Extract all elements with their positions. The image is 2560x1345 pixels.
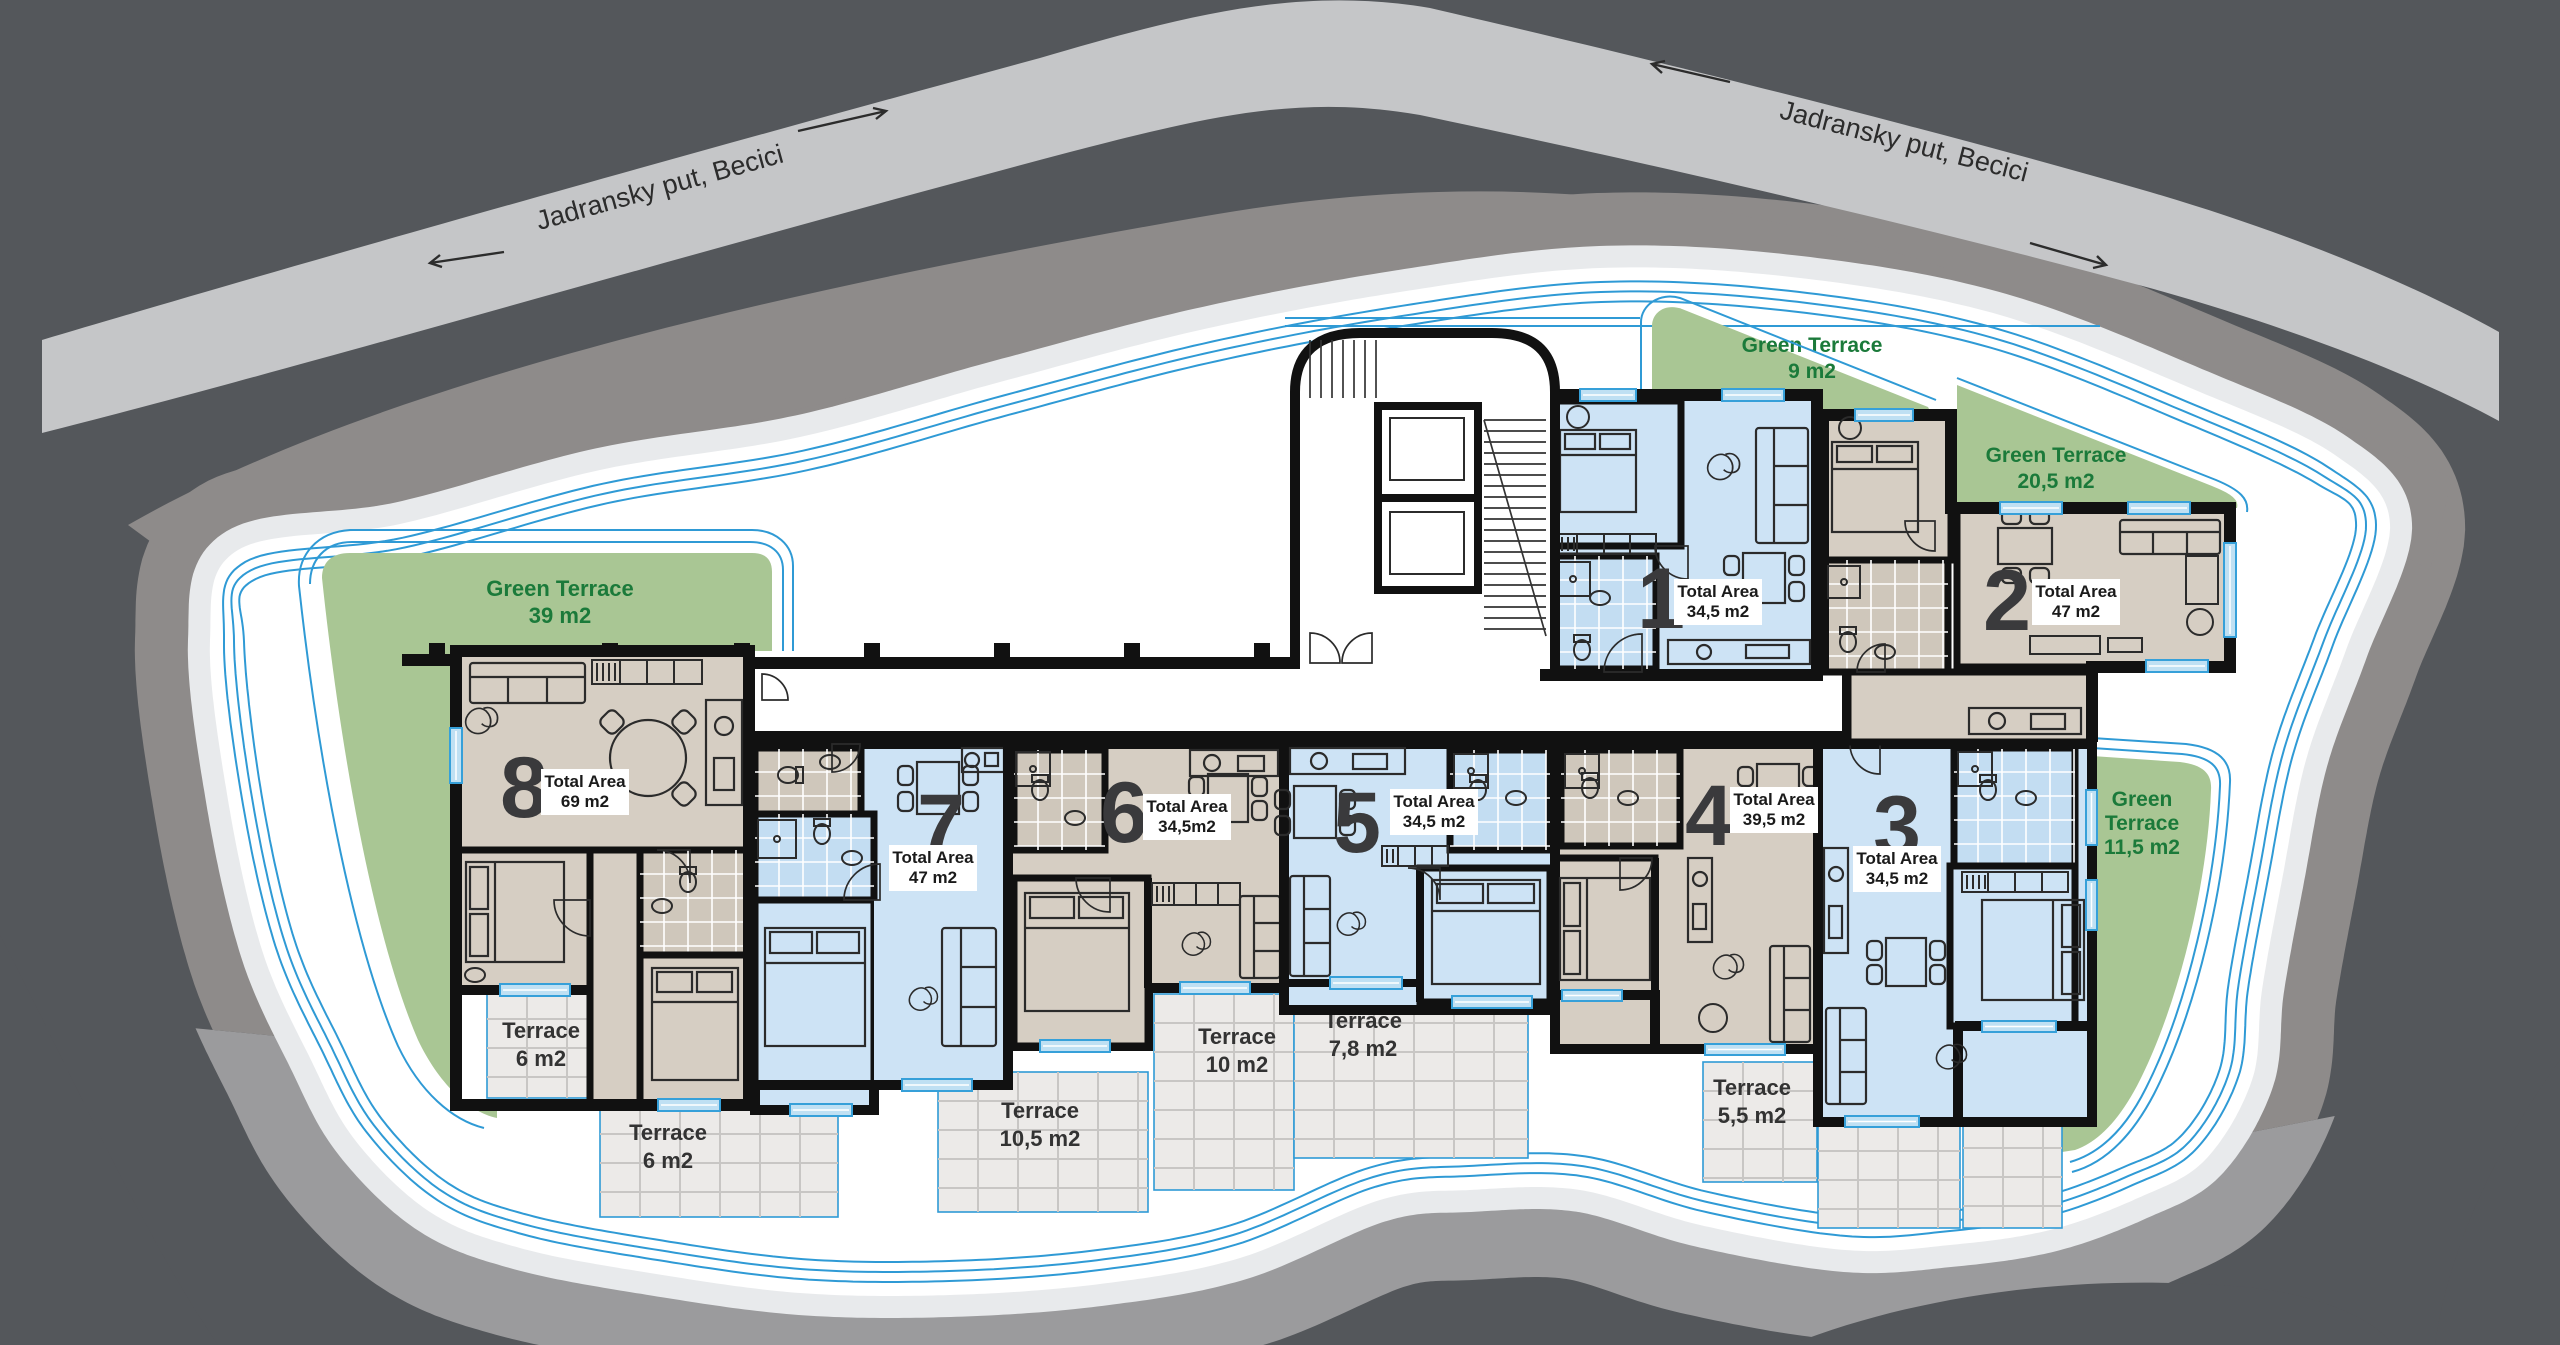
svg-text:Total Area: Total Area [1146,797,1228,816]
svg-text:6 m2: 6 m2 [516,1046,566,1071]
svg-text:6: 6 [1100,765,1148,861]
svg-text:34,5 m2: 34,5 m2 [1866,869,1928,888]
svg-text:Terrace: Terrace [1713,1075,1791,1100]
svg-text:Green Terrace: Green Terrace [1986,444,2127,467]
svg-text:Total Area: Total Area [544,772,626,791]
svg-text:Green Terrace: Green Terrace [1742,334,1883,357]
svg-text:47 m2: 47 m2 [909,868,957,887]
svg-text:Terrace: Terrace [629,1120,707,1145]
svg-text:11,5 m2: 11,5 m2 [2104,836,2180,859]
svg-text:4: 4 [1685,768,1733,864]
svg-text:2: 2 [1983,553,2031,649]
svg-text:Terrace: Terrace [502,1018,580,1043]
svg-text:5,5 m2: 5,5 m2 [1718,1103,1787,1128]
svg-text:39 m2: 39 m2 [529,603,591,628]
svg-text:Green: Green [2112,788,2173,811]
svg-text:34,5 m2: 34,5 m2 [1687,602,1749,621]
svg-text:Terrace: Terrace [1198,1024,1276,1049]
svg-text:Total Area: Total Area [1393,792,1475,811]
svg-text:Total Area: Total Area [1733,790,1815,809]
svg-text:7,8 m2: 7,8 m2 [1329,1036,1398,1061]
svg-text:Terrace: Terrace [1001,1098,1079,1123]
svg-text:Total Area: Total Area [1856,849,1938,868]
svg-text:69 m2: 69 m2 [561,792,609,811]
svg-text:9 m2: 9 m2 [1788,360,1836,383]
svg-text:34,5m2: 34,5m2 [1158,817,1216,836]
svg-text:Green Terrace: Green Terrace [486,576,634,601]
svg-text:10,5 m2: 10,5 m2 [1000,1126,1081,1151]
svg-text:Total Area: Total Area [892,848,974,867]
svg-text:20,5 m2: 20,5 m2 [2017,470,2094,493]
svg-text:Total Area: Total Area [1677,582,1759,601]
svg-text:39,5 m2: 39,5 m2 [1743,810,1805,829]
svg-text:8: 8 [500,740,548,836]
svg-text:10 m2: 10 m2 [1206,1052,1268,1077]
svg-text:47 m2: 47 m2 [2052,602,2100,621]
svg-text:6 m2: 6 m2 [643,1148,693,1173]
svg-text:Total Area: Total Area [2035,582,2117,601]
svg-text:34,5 m2: 34,5 m2 [1403,812,1465,831]
svg-text:Terrace: Terrace [2105,812,2179,835]
svg-text:5: 5 [1333,775,1381,871]
